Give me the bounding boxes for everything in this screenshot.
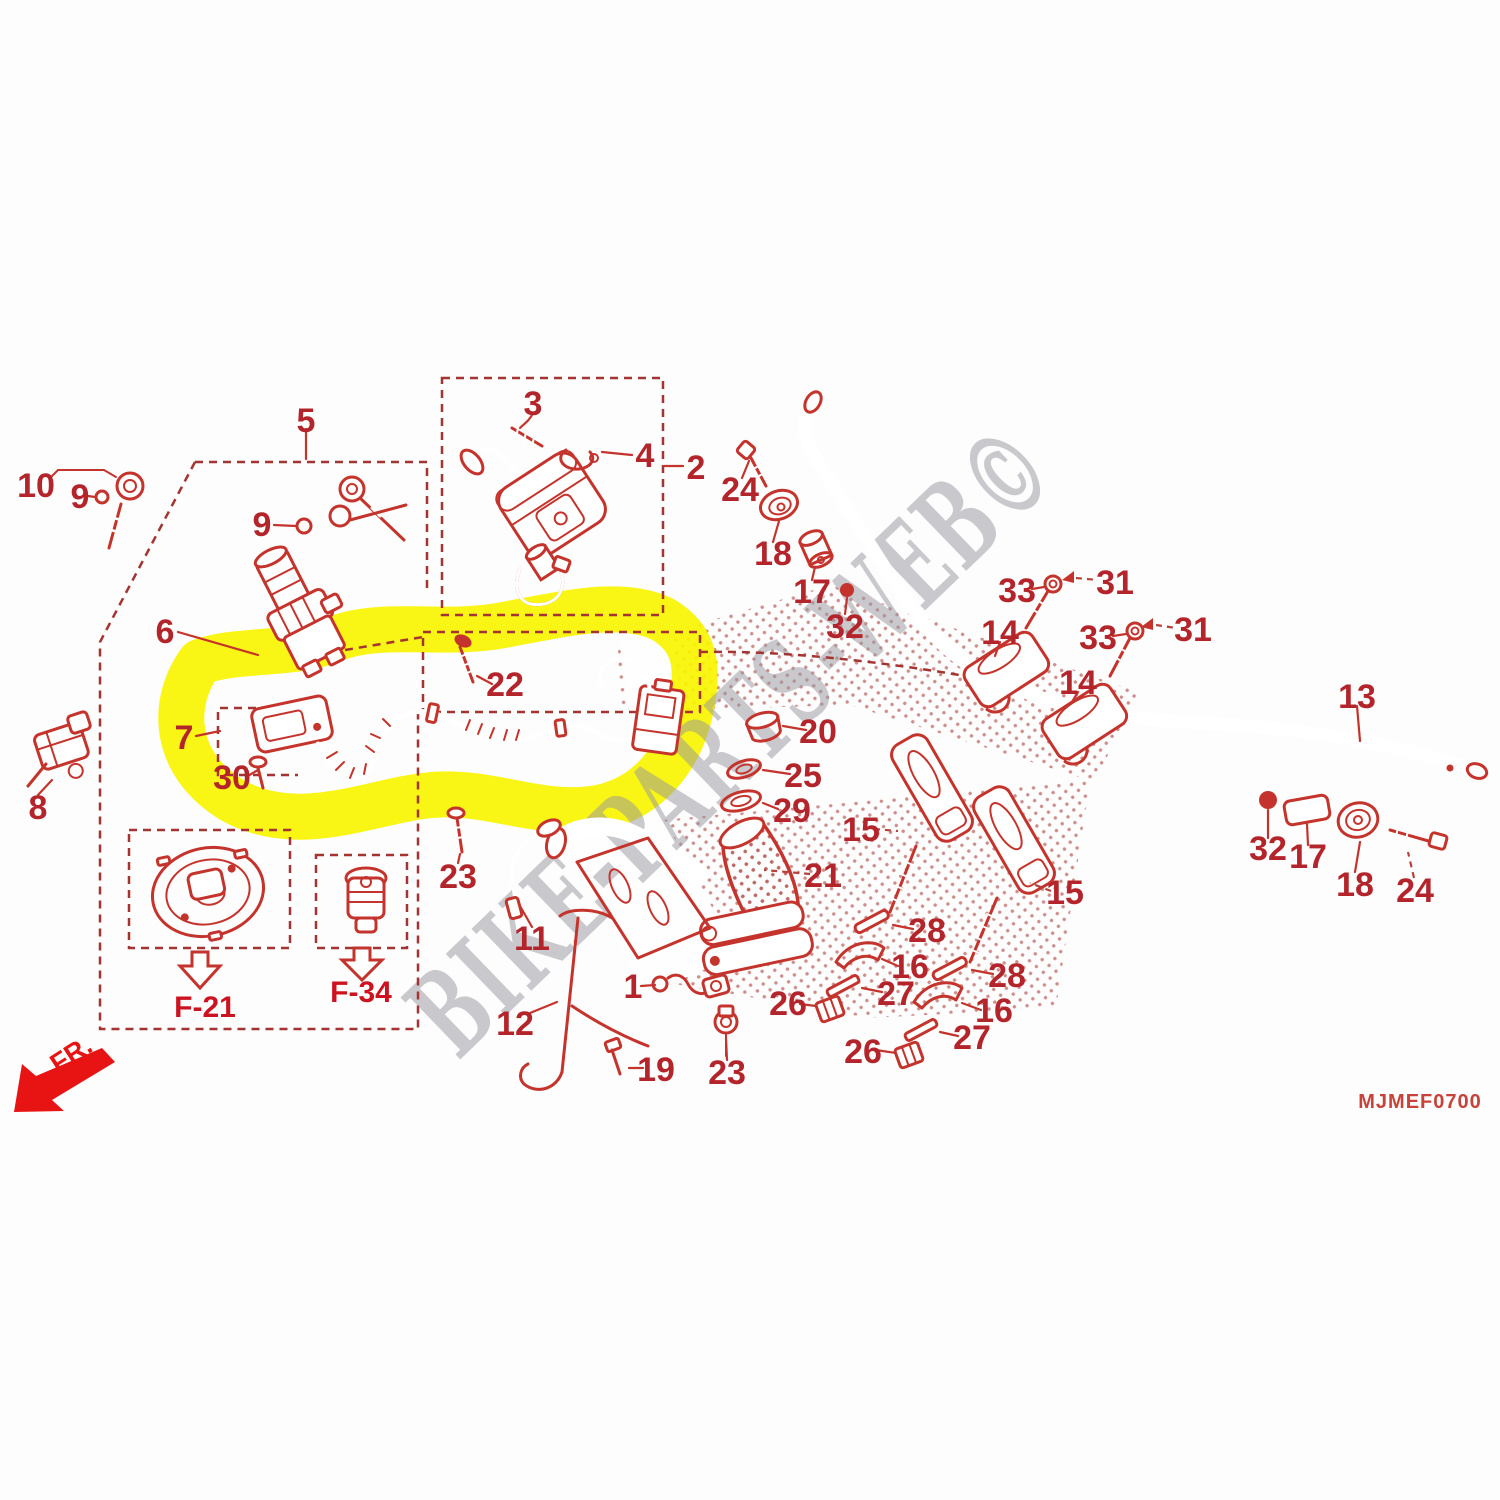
ref-label-f21: F-21 (174, 991, 236, 1024)
callout-11: 11 (514, 920, 550, 958)
callout-33: 33 (998, 572, 1036, 610)
callout-10: 10 (17, 467, 55, 505)
handle-lock-set (457, 428, 612, 605)
callout-19: 19 (637, 1051, 675, 1089)
callout-21: 21 (804, 857, 842, 895)
parts-diagram-canvas: BIKE-PARTS-WEB© (0, 0, 1500, 1500)
callout-24: 24 (1396, 872, 1434, 910)
callout-31: 31 (1174, 611, 1212, 649)
callout-15: 15 (842, 811, 880, 849)
callout-27: 27 (877, 975, 915, 1013)
callout-5: 5 (297, 402, 316, 440)
callout-23: 23 (439, 858, 477, 896)
callout-2: 2 (687, 449, 706, 487)
bar-end-parts-right (1259, 791, 1448, 850)
callout-14: 14 (981, 614, 1019, 652)
callout-3: 3 (524, 385, 543, 423)
callout-23: 23 (708, 1054, 746, 1092)
callout-27: 27 (953, 1019, 991, 1057)
ref-label-f34: F-34 (330, 976, 392, 1009)
callout-28: 28 (908, 912, 946, 950)
callout-7: 7 (175, 719, 194, 757)
callout-8: 8 (29, 789, 48, 827)
parts-diagram-page: BIKE-PARTS-WEB© (0, 0, 1500, 1500)
callout-18: 18 (754, 535, 792, 573)
fuel-cap (144, 837, 272, 948)
callout-31: 31 (1096, 564, 1134, 602)
callout-4: 4 (636, 437, 655, 475)
callout-20: 20 (799, 713, 837, 751)
callout-9: 9 (71, 478, 90, 516)
lock-cylinder-f34 (346, 868, 386, 932)
diagram-code: MJMEF0700 (1358, 1091, 1482, 1113)
callout-25: 25 (784, 757, 822, 795)
callout-28: 28 (988, 957, 1026, 995)
callout-30: 30 (213, 759, 251, 797)
cable-corrugation (327, 719, 519, 778)
callout-32: 32 (826, 608, 864, 646)
callout-29: 29 (773, 792, 811, 830)
callout-17: 17 (1289, 838, 1327, 876)
callout-33: 33 (1079, 619, 1117, 657)
callout-12: 12 (496, 1005, 534, 1043)
callout-14: 14 (1059, 664, 1097, 702)
bracket-8 (28, 711, 105, 787)
callout-17: 17 (793, 573, 831, 611)
callout-6: 6 (156, 613, 175, 651)
callout-9: 9 (253, 506, 272, 544)
callout-15: 15 (1046, 874, 1084, 912)
callout-18: 18 (1336, 866, 1374, 904)
key-10 (50, 470, 143, 548)
callout-24: 24 (721, 471, 759, 509)
callout-26: 26 (844, 1033, 882, 1071)
callout-22: 22 (486, 666, 524, 704)
callout-26: 26 (769, 985, 807, 1023)
callout-32: 32 (1249, 830, 1287, 868)
callout-1: 1 (624, 968, 643, 1006)
callout-13: 13 (1338, 678, 1376, 716)
